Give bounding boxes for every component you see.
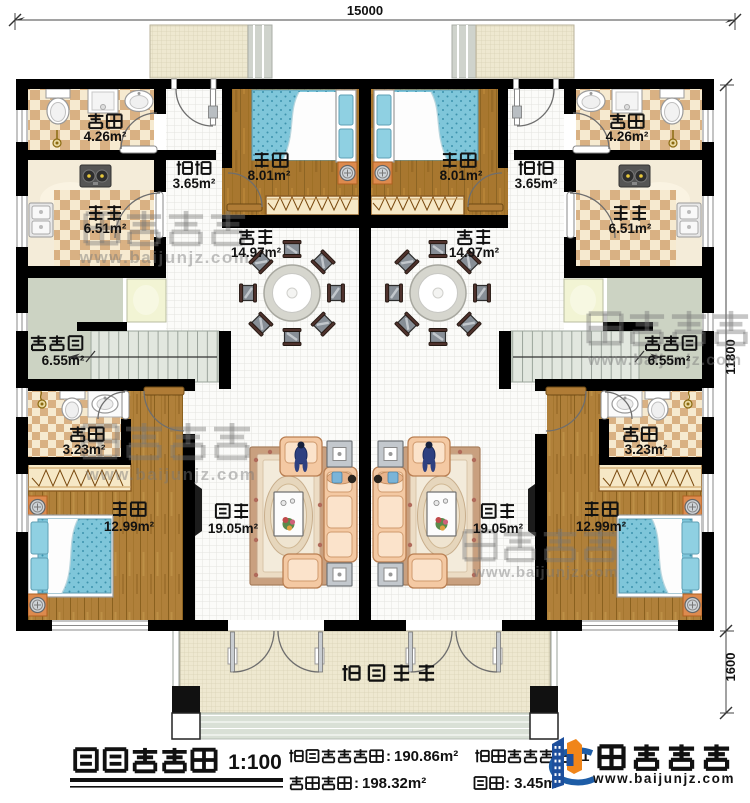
svg-text:3.23m²: 3.23m² [625,442,668,457]
svg-text::: : [354,775,359,792]
svg-text:8.01m²: 8.01m² [248,168,291,183]
svg-text:12.99m²: 12.99m² [104,519,155,534]
svg-text:8.01m²: 8.01m² [440,168,483,183]
svg-text:14.97m²: 14.97m² [231,245,282,260]
svg-text:12.99m²: 12.99m² [576,519,627,534]
svg-text:19.05m²: 19.05m² [208,521,259,536]
svg-text:: 3.45m: : 3.45m [505,775,557,792]
svg-text:www.baijunjz.com: www.baijunjz.com [79,248,251,267]
svg-text:15000: 15000 [347,3,383,18]
svg-text:6.55m²: 6.55m² [648,353,691,368]
svg-text:3.65m²: 3.65m² [515,176,558,191]
svg-text:6.55m²: 6.55m² [42,353,85,368]
svg-text:4.26m²: 4.26m² [606,129,649,144]
svg-text:198.32m²: 198.32m² [362,775,426,792]
svg-text:14.97m²: 14.97m² [449,245,500,260]
svg-text:1600: 1600 [723,653,738,682]
svg-text:1:100: 1:100 [228,751,282,774]
svg-text::: : [386,748,391,765]
svg-text:4.26m²: 4.26m² [84,129,127,144]
svg-text:www.baijunjz.com: www.baijunjz.com [592,771,735,786]
svg-text:19.05m²: 19.05m² [473,521,524,536]
svg-text:3.65m²: 3.65m² [173,176,216,191]
svg-text:3.23m²: 3.23m² [63,442,106,457]
svg-text:6.51m²: 6.51m² [609,221,652,236]
svg-text:www.baijunjz.com: www.baijunjz.com [85,465,257,484]
svg-text:www.baijunjz.com: www.baijunjz.com [472,564,618,581]
svg-text:6.51m²: 6.51m² [84,221,127,236]
svg-text:190.86m²: 190.86m² [394,748,458,765]
